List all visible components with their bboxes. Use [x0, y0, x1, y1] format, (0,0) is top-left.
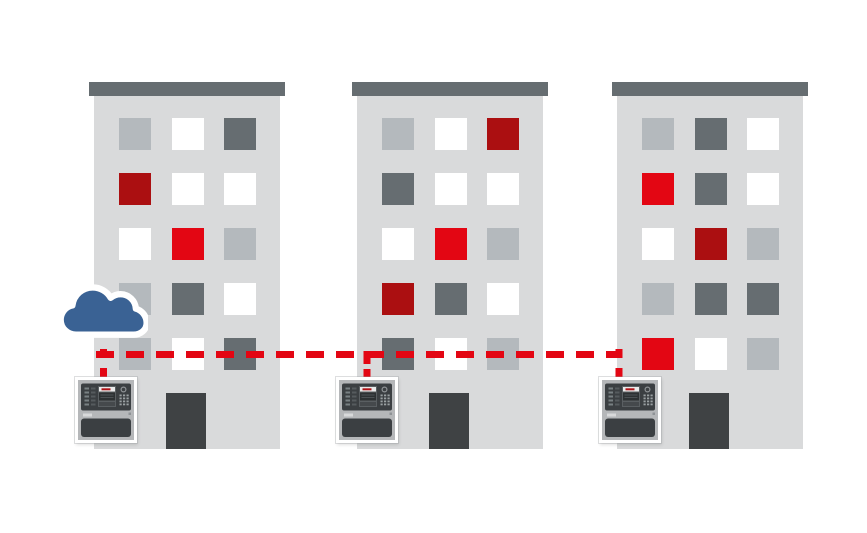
window-light — [119, 118, 151, 150]
panel-label — [344, 414, 353, 417]
window-white — [224, 173, 256, 205]
panel-lower-door — [605, 419, 655, 438]
window-light — [119, 338, 151, 370]
window-light — [382, 118, 414, 150]
window-dark — [224, 338, 256, 370]
window-white — [172, 173, 204, 205]
window-dark — [172, 283, 204, 315]
panel-display — [98, 386, 116, 407]
panel-display — [622, 386, 640, 407]
window-white — [487, 173, 519, 205]
window-white — [172, 118, 204, 150]
panel-top-unit — [81, 384, 131, 411]
panel-lower-door — [81, 419, 131, 438]
panel-keyhole — [390, 413, 393, 416]
window-light — [487, 228, 519, 260]
window-dark — [435, 283, 467, 315]
diagram-canvas — [0, 0, 867, 533]
roof — [352, 82, 548, 96]
panel-top-unit — [605, 384, 655, 411]
window-light — [747, 338, 779, 370]
window-red — [435, 228, 467, 260]
window-white — [119, 228, 151, 260]
window-dark — [695, 118, 727, 150]
window-dark — [695, 283, 727, 315]
panel-enclosure — [78, 380, 134, 440]
door — [166, 393, 206, 449]
window-dark — [695, 173, 727, 205]
window-red — [642, 173, 674, 205]
window-red — [642, 338, 674, 370]
fire-alarm-panel-1 — [75, 377, 137, 443]
window-light — [487, 338, 519, 370]
window-white — [642, 228, 674, 260]
window-white — [224, 283, 256, 315]
fire-panel-graphic — [339, 380, 395, 440]
window-white — [487, 283, 519, 315]
window-white — [747, 173, 779, 205]
window-dark — [382, 173, 414, 205]
window-dark — [747, 283, 779, 315]
brand-logo-icon — [626, 388, 635, 390]
fire-panel-graphic — [78, 380, 134, 440]
window-light — [224, 228, 256, 260]
roof — [89, 82, 285, 96]
door — [429, 393, 469, 449]
window-grid — [382, 118, 519, 370]
panel-keyhole — [653, 413, 656, 416]
window-white — [435, 118, 467, 150]
panel-enclosure — [602, 380, 658, 440]
window-red — [172, 228, 204, 260]
panel-label — [83, 414, 92, 417]
window-white — [747, 118, 779, 150]
window-white — [382, 228, 414, 260]
window-darkred — [119, 173, 151, 205]
window-white — [435, 338, 467, 370]
fire-alarm-panel-2 — [336, 377, 398, 443]
window-light — [642, 118, 674, 150]
window-light — [642, 283, 674, 315]
panel-display — [359, 386, 377, 407]
panel-keyhole — [129, 413, 132, 416]
window-darkred — [695, 228, 727, 260]
panel-enclosure — [339, 380, 395, 440]
brand-logo-icon — [363, 388, 372, 390]
window-dark — [224, 118, 256, 150]
window-white — [435, 173, 467, 205]
window-white — [695, 338, 727, 370]
fire-panel-graphic — [602, 380, 658, 440]
panel-lower-door — [342, 419, 392, 438]
window-darkred — [382, 283, 414, 315]
roof — [612, 82, 808, 96]
window-light — [747, 228, 779, 260]
brand-logo-icon — [102, 388, 111, 390]
window-white — [172, 338, 204, 370]
panel-top-unit — [342, 384, 392, 411]
window-grid — [642, 118, 779, 370]
window-darkred — [487, 118, 519, 150]
door — [689, 393, 729, 449]
window-dark — [382, 338, 414, 370]
panel-label — [607, 414, 616, 417]
fire-alarm-panel-3 — [599, 377, 661, 443]
cloud-icon — [58, 278, 148, 342]
